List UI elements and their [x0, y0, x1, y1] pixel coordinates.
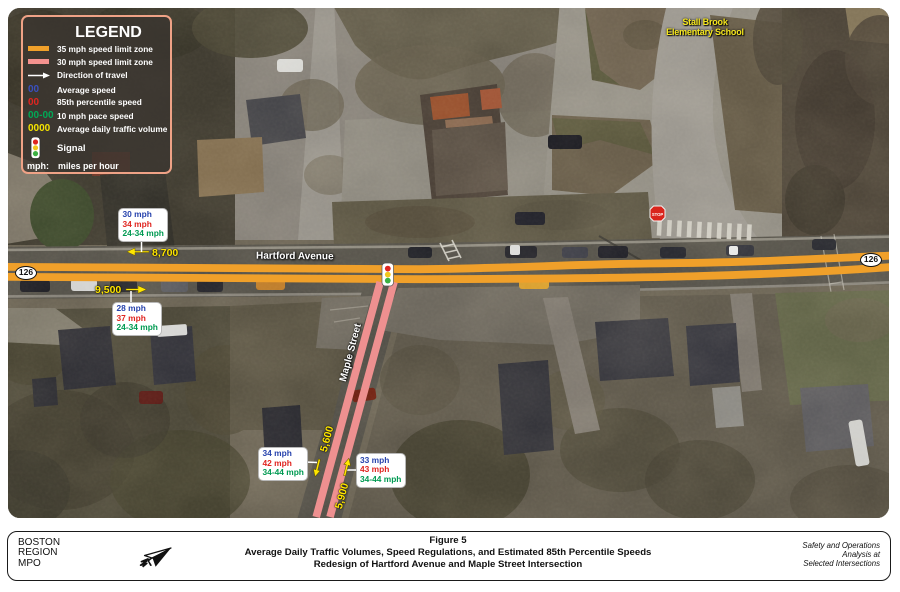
svg-text:STOP: STOP	[652, 212, 664, 217]
